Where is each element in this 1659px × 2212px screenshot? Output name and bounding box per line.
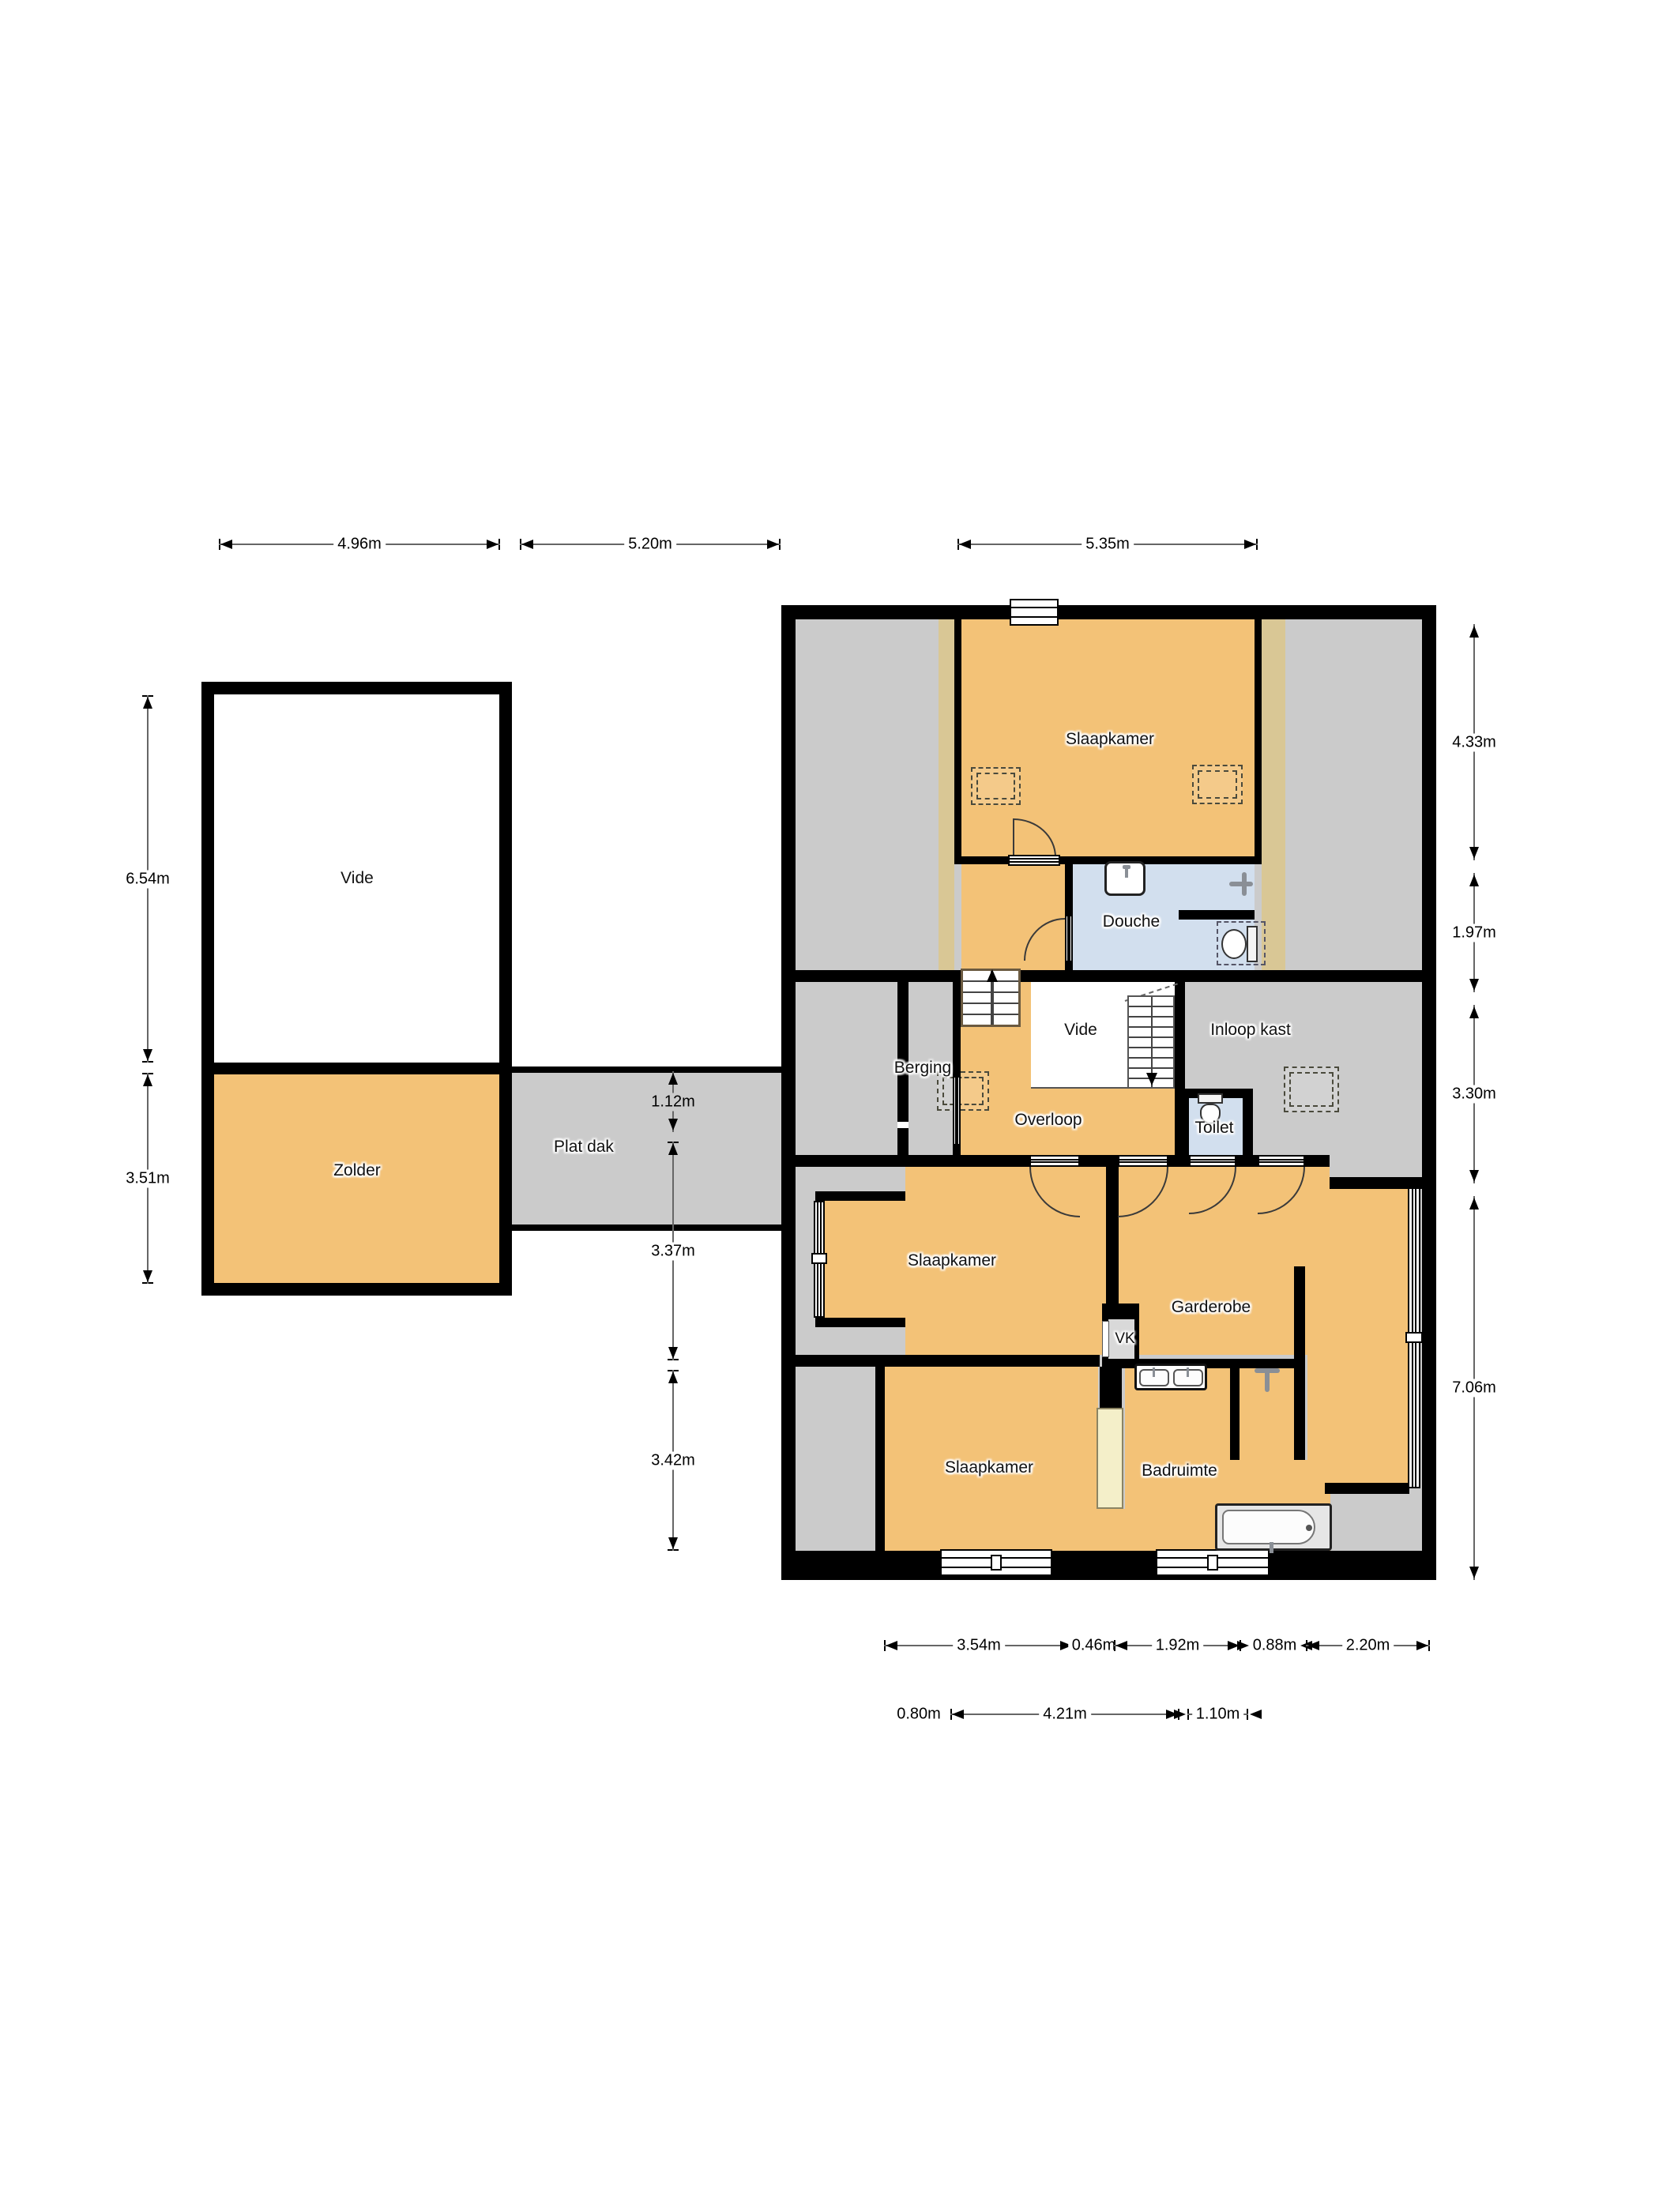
dim-label: 4.33m xyxy=(1448,733,1500,751)
wall xyxy=(1100,1367,1122,1408)
arrow-down-icon xyxy=(143,1049,152,1061)
door-leaf-hall-room xyxy=(1065,915,1073,962)
dim-label: 7.06m xyxy=(1448,1379,1500,1398)
arrow-left-icon xyxy=(220,540,232,549)
dim-label: 0.46m xyxy=(1068,1637,1120,1655)
arrow-down-icon xyxy=(668,1347,678,1359)
vk-door xyxy=(1102,1321,1109,1357)
dim-label: 3.37m xyxy=(647,1242,699,1260)
double-sink-icon xyxy=(1134,1364,1207,1390)
arrow-left-icon xyxy=(959,540,971,549)
arrow-left-icon xyxy=(521,540,533,549)
floor-plan: Vide Zolder Plat dak VK xyxy=(0,0,1659,2212)
door-leaf xyxy=(1013,818,1014,858)
dimension-left-2: 3.51m xyxy=(142,1073,153,1284)
arrow-icon xyxy=(1174,1710,1186,1719)
dim-label: 5.20m xyxy=(624,536,676,554)
dimension-bottom-7: 4.21m xyxy=(950,1709,1179,1720)
arrow-right-icon xyxy=(487,540,498,549)
arrow-right-icon xyxy=(1416,1641,1428,1650)
dimension-middle-1: 1.12m xyxy=(668,1071,679,1132)
dimension-bottom-4: 0.88m xyxy=(1251,1640,1299,1651)
wall xyxy=(512,1224,781,1231)
wall xyxy=(1177,1089,1189,1155)
arrow-down-icon xyxy=(1469,979,1479,991)
wall xyxy=(1255,619,1262,864)
wall xyxy=(1294,1266,1305,1460)
room-label-slaapkamer-bottom: Slaapkamer xyxy=(945,1458,1033,1477)
dim-label: 3.54m xyxy=(953,1637,1005,1655)
dim-label: 0.80m xyxy=(893,1706,945,1724)
arrow-down-icon xyxy=(143,1270,152,1282)
dim-label: 1.97m xyxy=(1448,924,1500,942)
dimension-right-1: 4.33m xyxy=(1469,624,1480,860)
window-mullion xyxy=(811,1253,827,1264)
dimension-top-3: 5.35m xyxy=(957,539,1258,550)
dimension-middle-2: 3.37m xyxy=(668,1142,679,1360)
wall xyxy=(1325,1483,1409,1494)
arrow-left-icon xyxy=(1307,1641,1319,1650)
room-label-vide-left: Vide xyxy=(340,869,374,888)
dimension-bottom-5: 2.20m xyxy=(1306,1640,1430,1651)
door-leaf-slaapkamer-top xyxy=(1008,855,1060,866)
passage-floor xyxy=(1098,1509,1125,1551)
wall xyxy=(1230,1368,1240,1460)
roof-strip-right xyxy=(1262,619,1285,970)
dim-label: 3.30m xyxy=(1448,1085,1500,1104)
skylight-dashed-box xyxy=(1284,1066,1339,1112)
arrow-up-icon xyxy=(143,1074,152,1086)
door-leaf-toilet xyxy=(1189,1155,1236,1167)
door-leaf-slaapkamer-mid xyxy=(1029,1155,1080,1167)
dim-label: 4.96m xyxy=(333,536,386,554)
arrow-up-icon xyxy=(1469,1198,1479,1209)
wall xyxy=(214,1063,499,1074)
arrow-down-icon xyxy=(668,1537,678,1549)
dimension-bottom-6: 0.80m xyxy=(897,1709,940,1720)
room-label-vk: VK xyxy=(1115,1330,1134,1348)
arrow-right-icon xyxy=(1244,540,1256,549)
wall xyxy=(1106,1167,1119,1303)
room-label-zolder: Zolder xyxy=(333,1161,381,1180)
window-mullion xyxy=(1207,1555,1218,1571)
wall xyxy=(1243,1089,1253,1155)
room-label-douche: Douche xyxy=(1103,912,1160,931)
window-mullion xyxy=(991,1555,1002,1571)
dimension-bottom-8: 1.10m xyxy=(1187,1709,1248,1720)
sink-icon xyxy=(1104,861,1145,896)
dimension-right-4: 7.06m xyxy=(1469,1196,1480,1580)
wall xyxy=(796,1355,1100,1367)
arrow-down-icon xyxy=(668,1119,678,1130)
window-icon xyxy=(1010,599,1059,626)
dim-label: 6.54m xyxy=(122,870,174,888)
room-label-inloop-kast: Inloop kast xyxy=(1210,1021,1291,1040)
dim-label: 4.21m xyxy=(1039,1706,1091,1724)
dimension-middle-3: 3.42m xyxy=(668,1370,679,1551)
stairs-down-icon xyxy=(1127,995,1175,1089)
dimension-top-2: 5.20m xyxy=(520,539,781,550)
dimension-right-2: 1.97m xyxy=(1469,873,1480,992)
arrow-icon xyxy=(1237,1641,1249,1650)
arrow-up-icon xyxy=(668,1073,678,1085)
arrow-down-icon xyxy=(1469,1170,1479,1182)
skylight-dashed-box xyxy=(971,767,1021,805)
dimension-bottom-2: 0.46m xyxy=(1074,1640,1114,1651)
dim-label: 3.51m xyxy=(122,1169,174,1187)
wall xyxy=(815,1318,905,1327)
toilet-icon xyxy=(1217,921,1266,965)
stairs-up-icon xyxy=(961,969,1021,1027)
room-label-garderobe: Garderobe xyxy=(1172,1298,1251,1317)
door-leaf-berging xyxy=(953,1076,961,1145)
arrow-down-icon xyxy=(1469,1567,1479,1578)
plat-dak-floor xyxy=(512,1066,781,1231)
wall xyxy=(954,619,961,864)
dimension-bottom-1: 3.54m xyxy=(884,1640,1074,1651)
arrow-up-icon xyxy=(1469,626,1479,638)
wall xyxy=(815,1191,905,1201)
wall xyxy=(875,1367,885,1551)
window-mullion xyxy=(1405,1332,1423,1343)
dim-label: 1.10m xyxy=(1192,1706,1244,1724)
garderobe-ext-floor xyxy=(1307,1189,1409,1488)
dimension-left-1: 6.54m xyxy=(142,695,153,1063)
dimension-top-1: 4.96m xyxy=(219,539,500,550)
room-label-badruimte: Badruimte xyxy=(1142,1461,1217,1480)
arrow-up-icon xyxy=(143,697,152,709)
arrow-icon xyxy=(1250,1710,1262,1719)
room-label-toilet: Toilet xyxy=(1194,1119,1233,1138)
room-label-berging: Berging xyxy=(894,1059,951,1078)
dimension-bottom-3: 1.92m xyxy=(1114,1640,1241,1651)
shower-faucet-icon xyxy=(1253,1364,1281,1392)
arrow-left-icon xyxy=(886,1641,897,1650)
dim-label: 0.88m xyxy=(1249,1637,1301,1655)
roof-strip-left xyxy=(939,619,954,970)
arrow-up-icon xyxy=(1469,1006,1479,1018)
arrow-down-icon xyxy=(1469,847,1479,859)
room-label-vide-right: Vide xyxy=(1064,1021,1097,1040)
dim-label: 3.42m xyxy=(647,1451,699,1469)
dim-label: 1.92m xyxy=(1152,1637,1204,1655)
door-leaf-inloop-kast xyxy=(1258,1155,1305,1167)
cabinet xyxy=(1097,1408,1123,1509)
skylight-dashed-box xyxy=(1192,765,1243,804)
wall xyxy=(796,970,1422,982)
room-label-overloop: Overloop xyxy=(1014,1111,1082,1130)
door-leaf-garderobe xyxy=(1118,1155,1168,1167)
slaapkamer-mid-bay-floor xyxy=(825,1198,905,1321)
wall xyxy=(512,1066,781,1073)
arrow-up-icon xyxy=(668,1371,678,1383)
shower-faucet-icon xyxy=(1229,872,1258,899)
dimension-right-3: 3.30m xyxy=(1469,1005,1480,1183)
dim-label: 1.12m xyxy=(647,1093,699,1111)
room-label-slaapkamer-mid: Slaapkamer xyxy=(908,1251,996,1270)
wall xyxy=(1179,910,1255,920)
arrow-up-icon xyxy=(668,1143,678,1155)
room-label-slaapkamer-top: Slaapkamer xyxy=(1066,730,1154,749)
dim-label: 2.20m xyxy=(1342,1637,1394,1655)
bathtub-icon xyxy=(1215,1503,1332,1551)
dim-label: 5.35m xyxy=(1082,536,1134,554)
arrow-left-icon xyxy=(1115,1641,1127,1650)
arrow-right-icon xyxy=(767,540,779,549)
room-label-plat-dak: Plat dak xyxy=(554,1138,614,1157)
window-icon xyxy=(897,1120,908,1130)
arrow-left-icon xyxy=(952,1710,964,1719)
arrow-up-icon xyxy=(1469,875,1479,886)
